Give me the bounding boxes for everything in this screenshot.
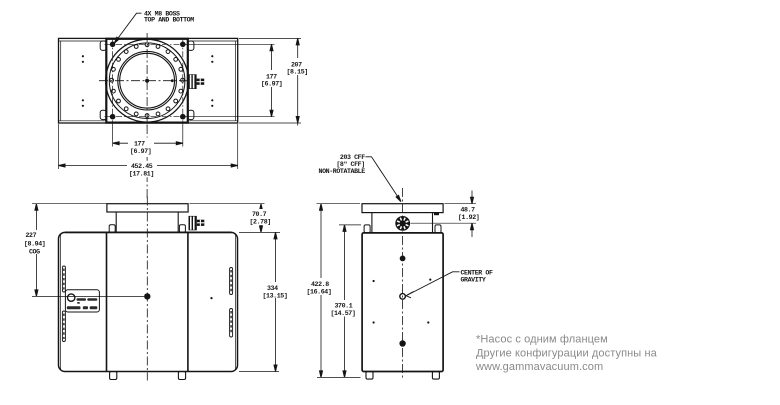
svg-text:[8.15]: [8.15]: [287, 69, 308, 76]
svg-text:70.7: 70.7: [252, 211, 267, 218]
svg-text:COG: COG: [29, 248, 40, 255]
svg-text:452.45: 452.45: [131, 163, 153, 170]
svg-text:[2.78]: [2.78]: [250, 219, 271, 226]
svg-text:48.7: 48.7: [461, 206, 476, 213]
svg-text:GRAVITY: GRAVITY: [461, 277, 486, 284]
svg-text:177: 177: [266, 74, 277, 81]
svg-text:TOP AND BOTTOM: TOP AND BOTTOM: [144, 17, 194, 24]
svg-text:207: 207: [291, 62, 302, 69]
svg-text:[1.92]: [1.92]: [458, 214, 479, 221]
svg-text:NON-ROTATABLE: NON-ROTATABLE: [319, 168, 366, 175]
svg-text:[14.57]: [14.57]: [331, 310, 356, 317]
svg-text:[8" CFF]: [8" CFF]: [336, 161, 364, 168]
svg-text:CENTER OF: CENTER OF: [461, 270, 493, 277]
svg-text:[6.97]: [6.97]: [130, 148, 151, 155]
svg-text:334: 334: [267, 285, 278, 292]
svg-text:*Насос с одним фланцем: *Насос с одним фланцем: [476, 334, 608, 346]
svg-text:[6.97]: [6.97]: [261, 81, 282, 88]
svg-text:370.1: 370.1: [335, 303, 353, 310]
svg-text:[8.94]: [8.94]: [24, 240, 45, 247]
svg-text:422.8: 422.8: [311, 281, 329, 288]
svg-text:www.gammavacuum.com: www.gammavacuum.com: [475, 361, 603, 373]
svg-text:177: 177: [134, 140, 145, 147]
svg-text:227: 227: [26, 232, 37, 239]
svg-text:[13.15]: [13.15]: [263, 292, 288, 299]
svg-text:203 CFF: 203 CFF: [340, 154, 365, 161]
svg-text:[16.64]: [16.64]: [307, 288, 332, 295]
svg-text:Другие конфигурации доступны н: Другие конфигурации доступны на: [476, 347, 658, 359]
svg-text:[17.81]: [17.81]: [129, 170, 154, 177]
